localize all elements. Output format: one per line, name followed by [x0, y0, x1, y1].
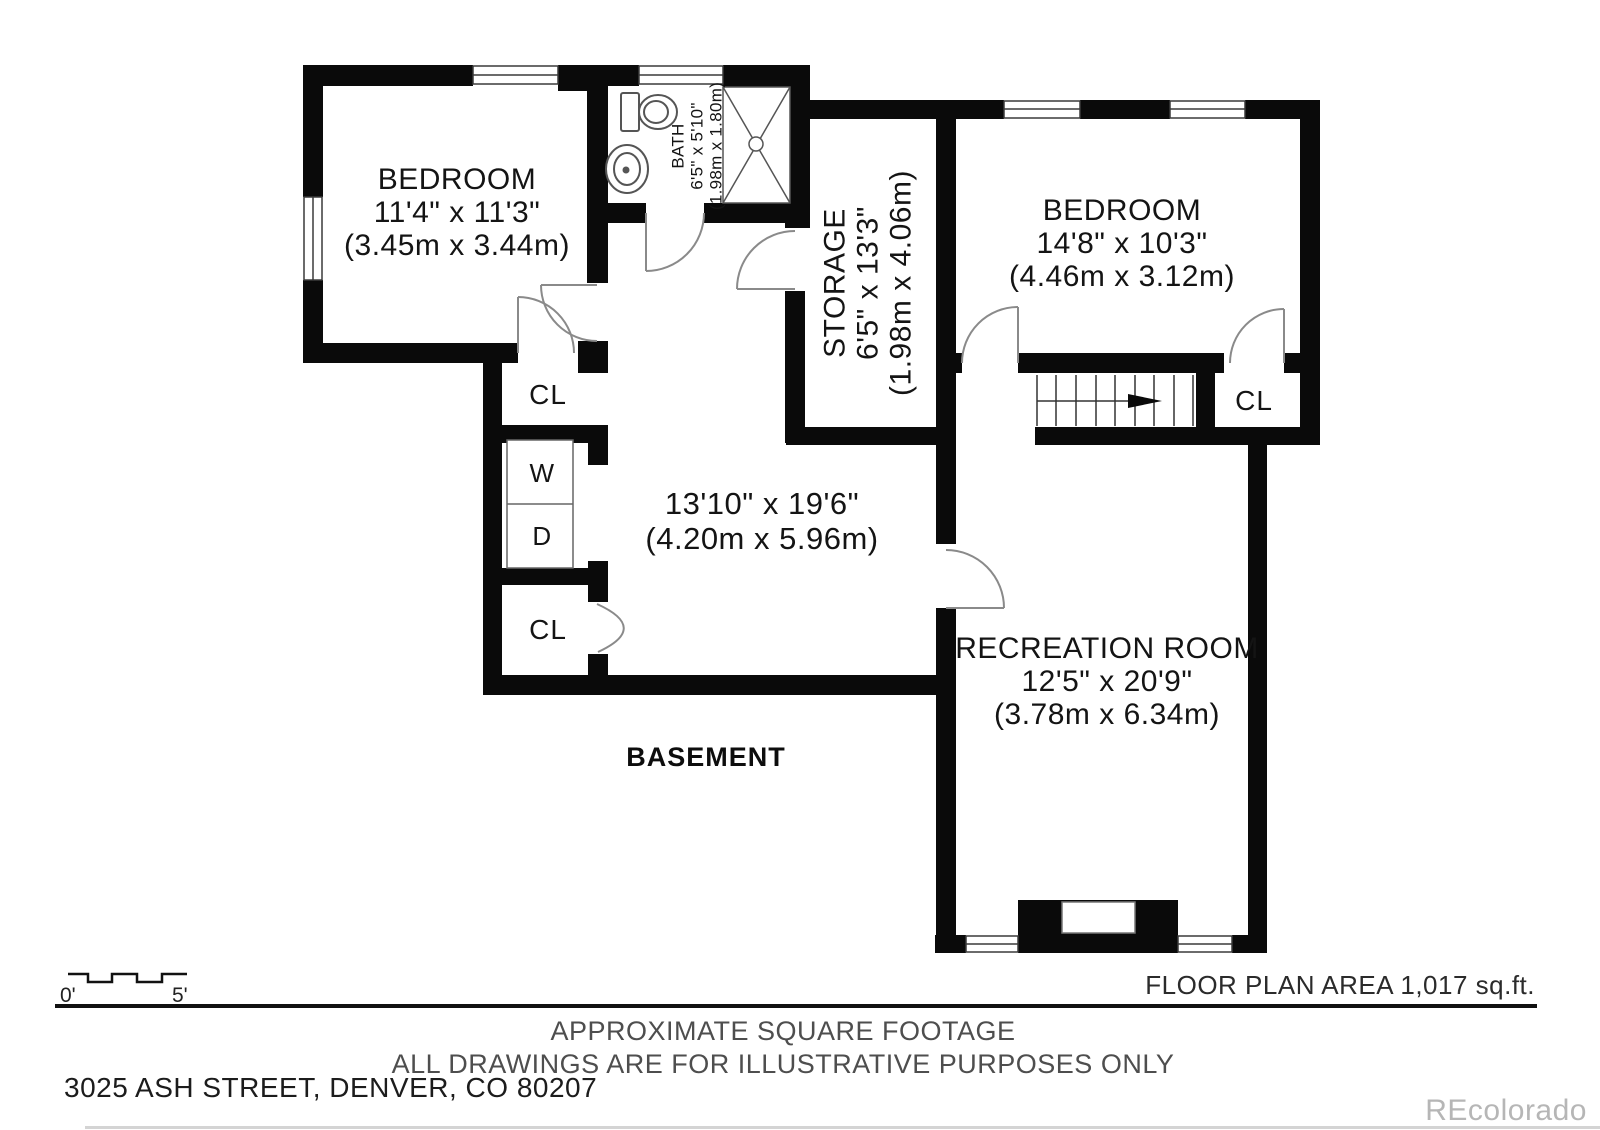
fireplace-chimney — [1018, 900, 1178, 953]
sink-icon — [606, 145, 648, 193]
room-label-center-room: 13'10" x 19'6" (4.20m x 5.96m) — [645, 486, 878, 556]
floor-plan-area-note: FLOOR PLAN AREA 1,017 sq.ft. — [1145, 970, 1535, 1001]
scale-end-label: 5' — [172, 984, 188, 1008]
floor-title: BASEMENT — [626, 742, 786, 773]
room-name: BATH — [669, 81, 688, 211]
room-label-bedroom-left: BEDROOM 11'4" x 11'3" (3.45m x 3.44m) — [344, 163, 570, 262]
room-dim-metric: (3.45m x 3.44m) — [344, 229, 570, 262]
shower-icon — [723, 87, 790, 203]
closet-label-bottom: CL — [529, 614, 567, 646]
scale-bar-icon — [68, 974, 187, 982]
room-dim-imperial: 6'5" x 13'3" — [852, 133, 885, 433]
closet-label-top: CL — [529, 379, 567, 411]
floor-plan-page: BEDROOM 11'4" x 11'3" (3.45m x 3.44m) BA… — [0, 0, 1600, 1130]
dryer-label: D — [532, 521, 551, 552]
room-dim-metric: (1.98m x 4.06m) — [885, 133, 918, 433]
staircase — [1037, 375, 1193, 426]
disclaimer-line-1: APPROXIMATE SQUARE FOOTAGE — [550, 1016, 1015, 1047]
closet-label-right: CL — [1235, 385, 1273, 417]
room-dim-metric: (1.98m x 1.80m) — [707, 81, 726, 211]
room-dim-metric: (3.78m x 6.34m) — [955, 698, 1259, 731]
stair-direction-arrow-icon — [1128, 394, 1162, 408]
room-label-storage: STORAGE 6'5" x 13'3" (1.98m x 4.06m) — [819, 133, 918, 433]
room-dim-metric: (4.20m x 5.96m) — [645, 521, 878, 556]
room-label-recreation: RECREATION ROOM 12'5" x 20'9" (3.78m x 6… — [955, 632, 1259, 731]
room-dim-imperial: 13'10" x 19'6" — [645, 486, 878, 521]
footer-divider-line — [55, 1004, 1537, 1008]
room-name: STORAGE — [819, 133, 852, 433]
room-dim-imperial: 14'8" x 10'3" — [1009, 227, 1235, 260]
room-dim-metric: (4.46m x 3.12m) — [1009, 260, 1235, 293]
room-dim-imperial: 11'4" x 11'3" — [344, 196, 570, 229]
page-bottom-edge — [85, 1126, 1600, 1129]
room-dim-imperial: 6'5" x 5'10" — [688, 81, 707, 211]
room-dim-imperial: 12'5" x 20'9" — [955, 665, 1259, 698]
room-name: BEDROOM — [1009, 194, 1235, 227]
floorplan-drawing — [0, 0, 1600, 1130]
room-name: RECREATION ROOM — [955, 632, 1259, 665]
watermark: REcolorado — [1425, 1094, 1587, 1128]
property-address: 3025 ASH STREET, DENVER, CO 80207 — [64, 1072, 597, 1104]
room-label-bath: BATH 6'5" x 5'10" (1.98m x 1.80m) — [669, 81, 726, 211]
room-name: BEDROOM — [344, 163, 570, 196]
scale-start-label: 0' — [60, 984, 76, 1008]
room-label-bedroom-right: BEDROOM 14'8" x 10'3" (4.46m x 3.12m) — [1009, 194, 1235, 293]
washer-label: W — [529, 458, 554, 489]
